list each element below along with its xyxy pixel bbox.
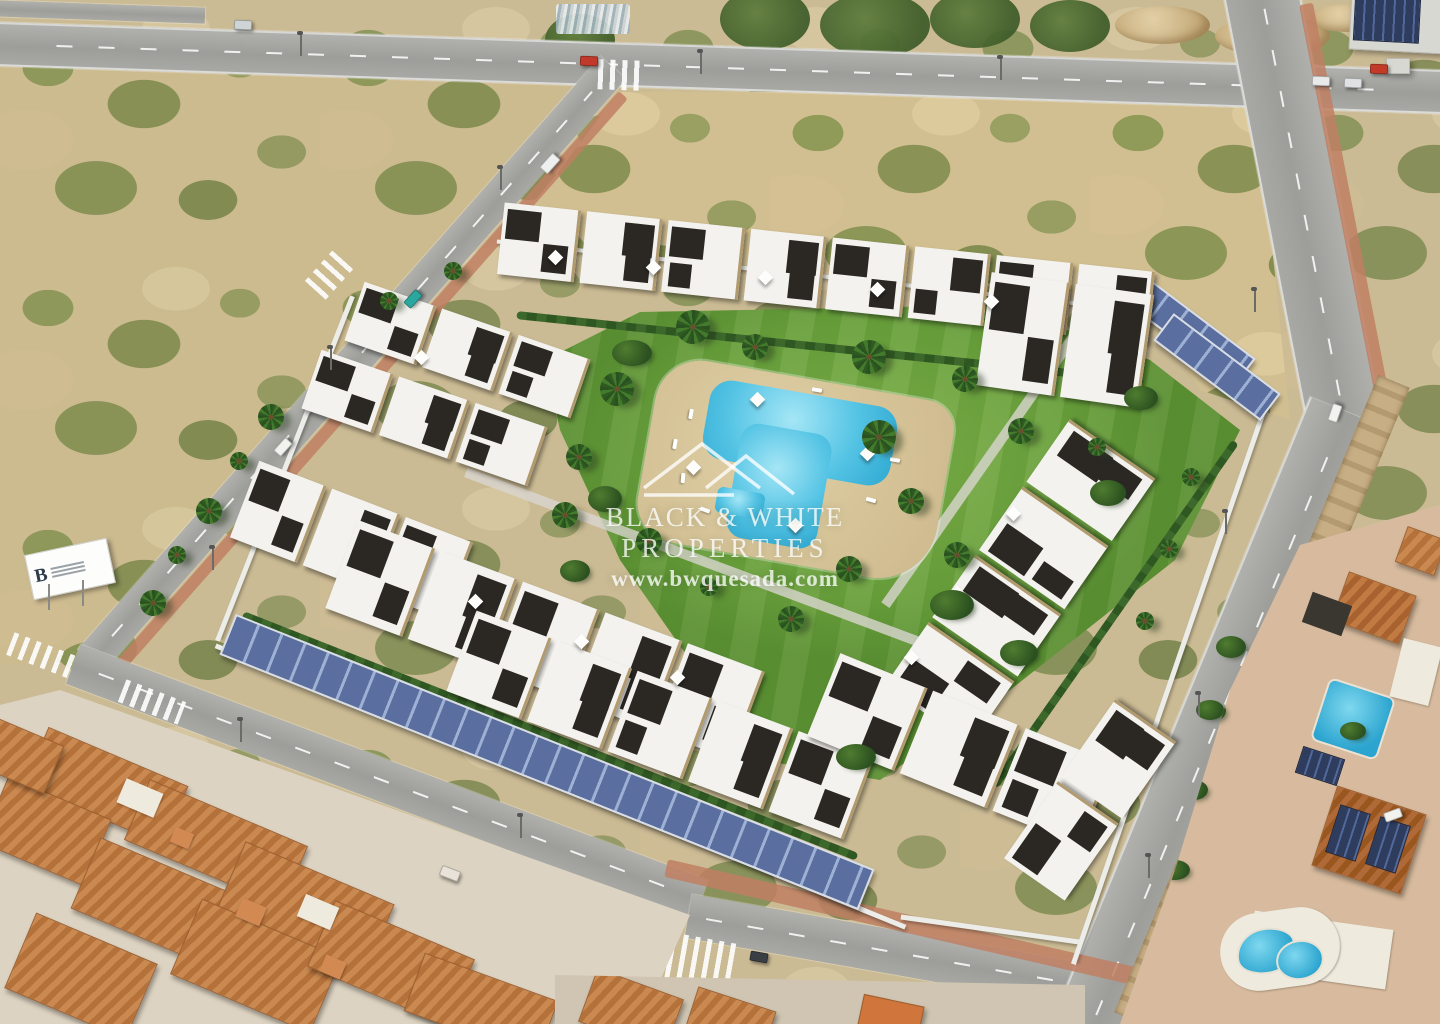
terracotta-roof — [404, 953, 559, 1024]
construction-debris — [556, 4, 630, 34]
palm-tree — [862, 420, 896, 454]
palm-tree — [898, 488, 924, 514]
shrub — [1124, 386, 1158, 410]
townhouse-unit — [743, 229, 827, 309]
street-light — [240, 720, 242, 742]
palm-tree — [1136, 612, 1154, 630]
palm-tree — [168, 546, 186, 564]
shrub — [1196, 700, 1224, 720]
villa-roof — [1395, 526, 1440, 576]
palm-tree — [636, 528, 662, 554]
villa-facade — [1389, 638, 1440, 706]
shrub — [930, 590, 974, 620]
townhouse-unit — [579, 211, 663, 291]
street-light — [1148, 856, 1150, 878]
palm-tree — [1088, 438, 1106, 456]
street-light — [520, 816, 522, 838]
palm-tree — [196, 498, 222, 524]
palm-tree — [1008, 418, 1034, 444]
shrub — [1000, 640, 1038, 666]
billboard-logo: B — [33, 565, 49, 586]
palm-tree — [566, 444, 592, 470]
aerial-photo-new-build-complex: B — [0, 0, 1440, 1024]
palm-tree — [380, 292, 398, 310]
villa-pool — [1310, 677, 1397, 761]
tree-cluster — [1030, 0, 1110, 52]
palm-tree — [1160, 540, 1178, 558]
crosswalk — [597, 59, 642, 91]
shrub — [588, 486, 622, 512]
street-light — [300, 34, 302, 56]
street-light — [212, 548, 214, 570]
townhouse-unit — [825, 238, 909, 318]
car-red — [580, 56, 598, 67]
palm-tree — [230, 452, 248, 470]
billboard-text-lines — [50, 559, 86, 580]
kiosk — [1386, 58, 1410, 74]
street-light — [500, 168, 502, 190]
terracotta-roof — [857, 994, 924, 1024]
palm-tree — [1182, 468, 1200, 486]
sun-lounger — [681, 473, 686, 483]
street-light — [1254, 290, 1256, 312]
street-light — [700, 52, 702, 74]
shrub — [1090, 480, 1126, 506]
car-white — [1344, 78, 1362, 89]
townhouse-unit — [907, 246, 991, 326]
shrub — [1216, 636, 1246, 658]
terracotta-roof — [686, 986, 777, 1024]
townhouse-unit — [976, 272, 1070, 396]
car-silver — [234, 20, 252, 31]
shrub — [836, 744, 876, 770]
palm-tree — [552, 502, 578, 528]
palm-tree — [140, 590, 166, 616]
street-light — [330, 348, 332, 370]
palm-tree — [778, 606, 804, 632]
billboard-leg — [48, 584, 50, 610]
street-light — [1225, 512, 1227, 534]
palm-tree — [258, 404, 284, 430]
palm-tree — [944, 542, 970, 568]
palm-tree — [742, 334, 768, 360]
townhouse-unit — [497, 202, 581, 282]
palm-tree — [952, 366, 978, 392]
warehouse-solar-array — [1353, 0, 1421, 44]
shrub — [612, 340, 652, 366]
villa-solar-array — [1295, 746, 1345, 786]
dirt-mound — [1115, 6, 1210, 44]
palm-tree — [700, 578, 718, 596]
street-light — [1000, 58, 1002, 80]
shrub — [560, 560, 590, 582]
shrub — [1340, 722, 1366, 740]
palm-tree — [600, 372, 634, 406]
street-light — [1198, 694, 1200, 716]
palm-tree — [852, 340, 886, 374]
billboard-leg — [82, 580, 84, 606]
palm-tree — [836, 556, 862, 582]
truck-red — [1370, 64, 1388, 75]
car-white — [1312, 76, 1330, 87]
palm-tree — [676, 310, 710, 344]
palm-tree — [444, 262, 462, 280]
townhouse-unit — [661, 220, 745, 300]
